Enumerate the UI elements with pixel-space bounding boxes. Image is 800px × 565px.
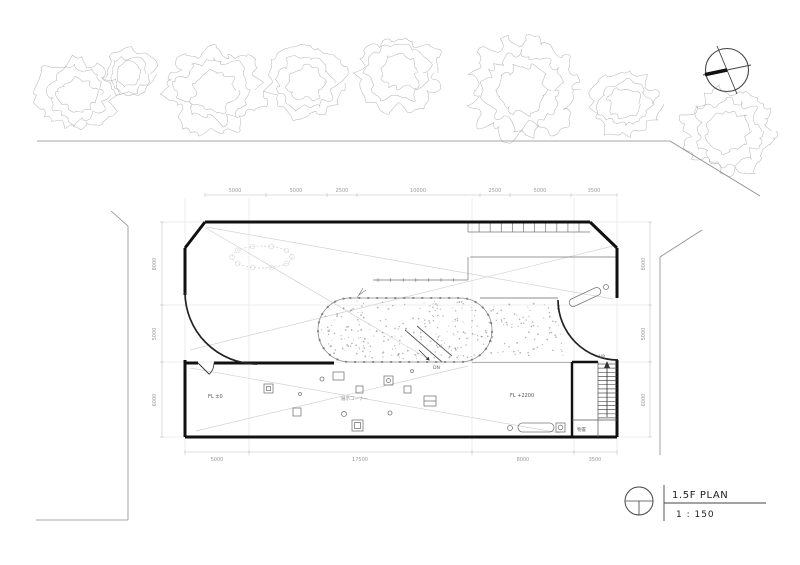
- compass-north-arrow-icon: [703, 46, 751, 94]
- stairs-up-label: UP: [599, 354, 605, 360]
- dim-label: 3500: [588, 188, 601, 194]
- door-swing: [198, 363, 214, 374]
- furniture: [264, 285, 609, 433]
- tree-sketch: [353, 38, 441, 114]
- tree-sketch: [102, 47, 158, 96]
- ramp-down-label: DN: [433, 365, 440, 371]
- site-trees-sketch: [34, 35, 778, 177]
- dim-label: 2500: [336, 188, 349, 194]
- title-block: 1.5F PLAN 1 : 150: [625, 485, 766, 521]
- dim-label: 3500: [589, 457, 602, 463]
- drawing-reference-circle-icon: [625, 487, 653, 515]
- dim-label: 5000: [534, 188, 547, 194]
- dim-label: 5000: [641, 328, 647, 341]
- structural-grid: [162, 198, 648, 456]
- dim-label: 10000: [410, 188, 426, 194]
- dim-label: 8000: [517, 457, 530, 463]
- staircase: [572, 361, 617, 437]
- wardrobe-dividers: [468, 223, 579, 233]
- floor-level-label: FL +2200: [510, 393, 534, 399]
- stipple-floor-texture: [321, 301, 563, 359]
- tree-sketch: [467, 35, 581, 144]
- curved-walls: [185, 292, 618, 364]
- area-note-label: 展示コーナー: [341, 396, 368, 402]
- drawing-scale: 1 : 150: [676, 510, 715, 520]
- storage-room-label: 物置: [577, 426, 586, 433]
- tree-sketch: [679, 85, 777, 177]
- floor-level-label: FL ±0: [208, 394, 223, 400]
- dim-label: 5000: [229, 188, 242, 194]
- floor-plan-drawing: 5000 5000 2500 10000 2500 5000 3500 5000…: [0, 0, 800, 565]
- dim-label: 5000: [211, 457, 224, 463]
- dim-label: 2500: [489, 188, 502, 194]
- drawing-title: 1.5F PLAN: [672, 490, 728, 501]
- dim-label: 8000: [152, 258, 158, 271]
- dim-label: 8000: [641, 258, 647, 271]
- site-boundary-lines: [36, 141, 760, 520]
- floor-plan-sheet: 5000 5000 2500 10000 2500 5000 3500 5000…: [0, 0, 800, 565]
- tree-sketch: [589, 71, 664, 138]
- dim-label: 17500: [352, 457, 368, 463]
- tree-sketch: [160, 45, 267, 137]
- dim-label: 5000: [290, 188, 303, 194]
- plan-annotations: FL ±0 展示コーナー FL +2200 UP DN 物置: [208, 354, 605, 433]
- dim-label: 5000: [152, 328, 158, 341]
- dim-label: 6000: [152, 394, 158, 407]
- dim-label: 6000: [641, 394, 647, 407]
- tree-sketch: [34, 55, 121, 130]
- tree-sketch: [264, 44, 349, 120]
